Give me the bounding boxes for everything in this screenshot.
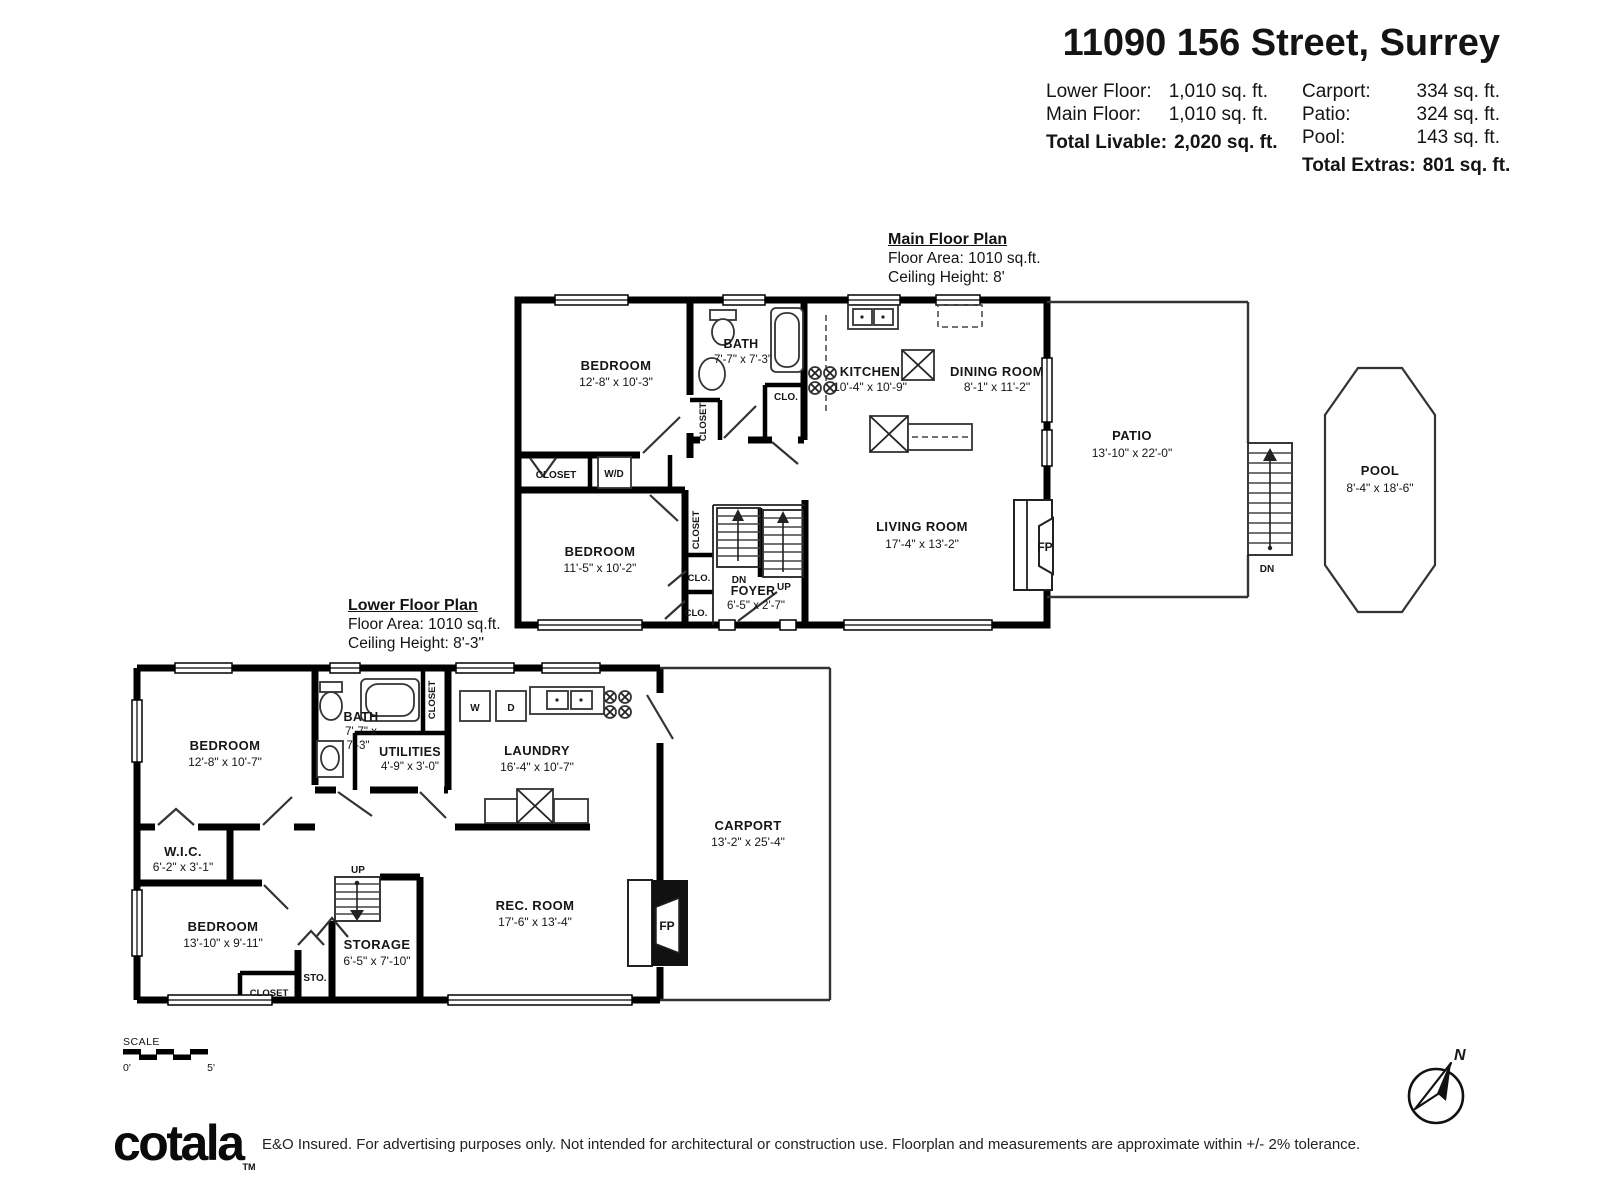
main-floor-plan-title: Main Floor Plan: [888, 230, 1041, 249]
scale-indicator: SCALE 0' 5': [123, 1036, 223, 1074]
room-dims-bath2-line2: 7'-3": [347, 740, 370, 752]
room-label-kitchen: KITCHEN: [840, 364, 901, 379]
compass-n-label: N: [1454, 1047, 1466, 1064]
closet-label: CLO.: [685, 608, 708, 619]
room-dims-bath2-line1: 7'-7" x: [345, 726, 377, 738]
window: [448, 995, 632, 1005]
lower-floor-stairs: [335, 877, 380, 921]
scale-label: SCALE: [123, 1036, 223, 1048]
room-label-laundry: LAUNDRY: [504, 743, 570, 758]
main-floor-labels: BEDROOM 12'-8" x 10'-3" BATH 7'-7" x 7'-…: [536, 337, 1414, 619]
stairs-dn-label: DN: [732, 575, 746, 586]
stat-label: Patio:: [1302, 103, 1351, 126]
stat-label: Pool:: [1302, 126, 1345, 149]
room-dims-patio: 13'-10" x 22'-0": [1092, 446, 1172, 460]
north-compass-icon: N: [1398, 1042, 1478, 1134]
room-dims-carport: 13'-2" x 25'-4": [711, 835, 785, 849]
stat-label: Lower Floor:: [1046, 80, 1152, 103]
stat-value: 1,010 sq. ft.: [1169, 80, 1268, 103]
stat-label: Carport:: [1302, 80, 1371, 103]
lower-floor-area: Floor Area: 1010 sq.ft.: [348, 615, 501, 634]
stat-row-patio: Patio: 324 sq. ft.: [1302, 103, 1500, 126]
washer-label: W: [470, 703, 480, 714]
patio-stairs-dn-label: DN: [1260, 564, 1274, 575]
room-dims-bedroom4: 13'-10" x 9'-11": [183, 936, 263, 950]
room-dims-utilities: 4'-9" x 3'-0": [381, 761, 439, 773]
cotala-logo: cotalaTM: [113, 1114, 256, 1172]
disclaimer-text: E&O Insured. For advertising purposes on…: [262, 1136, 1360, 1153]
window: [175, 663, 232, 673]
room-label-bedroom2: BEDROOM: [565, 544, 636, 559]
stat-label: Main Floor:: [1046, 103, 1141, 126]
closet-label: CLO.: [774, 392, 798, 403]
main-floor-plan-drawing: BEDROOM 12'-8" x 10'-3" BATH 7'-7" x 7'-…: [510, 290, 1445, 640]
scale-end: 5': [207, 1062, 215, 1074]
closet-label: CLOSET: [250, 988, 289, 999]
stat-row-carport: Carport: 334 sq. ft.: [1302, 80, 1500, 103]
main-floor-stairs: [717, 508, 803, 577]
washer-dryer-label: W/D: [604, 469, 623, 480]
room-label-storage: STORAGE: [344, 937, 411, 952]
rec-island: [485, 789, 588, 823]
stat-value: 324 sq. ft.: [1417, 103, 1500, 126]
lower-floor-labels: BEDROOM 12'-8" x 10'-7" BATH 7'-7" x 7'-…: [153, 681, 785, 999]
room-dims-recroom: 17'-6" x 13'-4": [498, 915, 572, 929]
room-label-bath: BATH: [724, 337, 759, 351]
bathtub: [771, 308, 803, 372]
room-label-foyer: FOYER: [731, 584, 776, 598]
scale-bar: [123, 1049, 215, 1061]
window: [132, 890, 142, 956]
stat-value: 143 sq. ft.: [1417, 126, 1500, 149]
stove: [604, 691, 631, 718]
closet-label: CLOSET: [536, 470, 577, 481]
patio-slider-door: [1042, 430, 1052, 466]
floorplan-page: 11090 156 Street, Surrey Lower Floor: 1,…: [0, 0, 1600, 1200]
closet-label: CLOSET: [427, 681, 438, 720]
dryer-label: D: [507, 703, 514, 714]
lower-floor-title-block: Lower Floor Plan Floor Area: 1010 sq.ft.…: [348, 596, 501, 653]
closet-label: CLOSET: [698, 403, 709, 442]
stairs-up-label: UP: [351, 865, 365, 876]
room-dims-wic: 6'-2" x 3'-1": [153, 860, 213, 874]
stat-label: Total Livable:: [1046, 132, 1167, 154]
lower-floor-ceiling: Ceiling Height: 8'-3": [348, 634, 501, 653]
window: [719, 620, 735, 630]
stat-label: Total Extras:: [1302, 155, 1416, 177]
closet-label: CLO.: [688, 573, 711, 584]
room-dims-foyer: 6'-5" x 2'-7": [727, 600, 785, 612]
stat-value: 1,010 sq. ft.: [1169, 103, 1268, 126]
stat-total-livable: Total Livable: 2,020 sq. ft.: [1046, 132, 1268, 154]
room-dims-dining: 8'-1" x 11'-2": [964, 380, 1030, 394]
stat-value: 801 sq. ft.: [1423, 155, 1511, 177]
room-label-living: LIVING ROOM: [876, 519, 968, 534]
bath-sink: [320, 682, 342, 720]
stat-total-extras: Total Extras: 801 sq. ft.: [1302, 155, 1500, 177]
room-label-patio: PATIO: [1112, 428, 1152, 443]
room-dims-bedroom2: 11'-5" x 10'-2": [564, 561, 637, 575]
room-dims-bedroom1: 12'-8" x 10'-3": [579, 375, 653, 389]
room-dims-storage: 6'-5" x 7'-10": [343, 954, 410, 968]
room-label-bath2: BATH: [344, 710, 379, 724]
window: [132, 700, 142, 762]
page-title: 11090 156 Street, Surrey: [1063, 22, 1500, 65]
window: [848, 295, 900, 305]
room-label-recroom: REC. ROOM: [496, 898, 575, 913]
main-floor-area: Floor Area: 1010 sq.ft.: [888, 249, 1041, 268]
stat-row-main-floor: Main Floor: 1,010 sq. ft.: [1046, 103, 1268, 126]
stat-value: 2,020 sq. ft.: [1174, 132, 1278, 154]
window: [555, 295, 628, 305]
area-stats: Lower Floor: 1,010 sq. ft. Main Floor: 1…: [1046, 80, 1500, 177]
window: [780, 620, 796, 630]
window: [844, 620, 992, 630]
window: [936, 295, 980, 305]
closet-label: CLOSET: [691, 511, 702, 550]
main-floor-ceiling: Ceiling Height: 8': [888, 268, 1041, 287]
room-label-utilities: UTILITIES: [379, 745, 441, 759]
stove: [809, 367, 836, 394]
window: [723, 295, 765, 305]
room-dims-bedroom3: 12'-8" x 10'-7": [188, 755, 262, 769]
lower-floor-plan-drawing: BEDROOM 12'-8" x 10'-7" BATH 7'-7" x 7'-…: [130, 655, 840, 1010]
room-label-wic: W.I.C.: [164, 844, 202, 859]
fireplace: [628, 880, 688, 966]
logo-text: cotala: [113, 1115, 243, 1171]
window: [456, 663, 514, 673]
room-label-dining: DINING ROOM: [950, 364, 1044, 379]
stat-value: 334 sq. ft.: [1417, 80, 1500, 103]
room-label-bedroom1: BEDROOM: [581, 358, 652, 373]
stat-row-pool: Pool: 143 sq. ft.: [1302, 126, 1500, 149]
vanity-sink: [317, 741, 343, 777]
laundry-sink-counter: [530, 687, 604, 714]
storage-small-label: STO.: [303, 973, 326, 984]
window: [330, 663, 360, 673]
fireplace-label: FP: [1037, 540, 1052, 554]
room-dims-kitchen: 10'-4" x 10'-9": [833, 380, 907, 394]
room-label-bedroom3: BEDROOM: [190, 738, 261, 753]
stat-row-lower-floor: Lower Floor: 1,010 sq. ft.: [1046, 80, 1268, 103]
fireplace-label: FP: [659, 919, 674, 933]
main-floor-fixtures: [598, 305, 1053, 590]
stairs-up-label: UP: [777, 582, 791, 593]
room-dims-living: 17'-4" x 13'-2": [885, 537, 959, 551]
stats-left-column: Lower Floor: 1,010 sq. ft. Main Floor: 1…: [1046, 80, 1268, 177]
room-dims-pool: 8'-4" x 18'-6": [1346, 481, 1413, 495]
main-floor-title-block: Main Floor Plan Floor Area: 1010 sq.ft. …: [888, 230, 1041, 287]
stats-right-column: Carport: 334 sq. ft. Patio: 324 sq. ft. …: [1302, 80, 1500, 177]
window: [542, 663, 600, 673]
room-label-carport: CARPORT: [714, 818, 781, 833]
room-dims-laundry: 16'-4" x 10'-7": [500, 760, 574, 774]
room-dims-bath: 7'-7" x 7'-3": [714, 354, 772, 366]
room-label-pool: POOL: [1361, 463, 1399, 478]
window: [538, 620, 642, 630]
room-label-bedroom4: BEDROOM: [188, 919, 259, 934]
scale-start: 0': [123, 1062, 131, 1074]
lower-floor-plan-title: Lower Floor Plan: [348, 596, 501, 615]
logo-trademark: TM: [243, 1162, 256, 1172]
